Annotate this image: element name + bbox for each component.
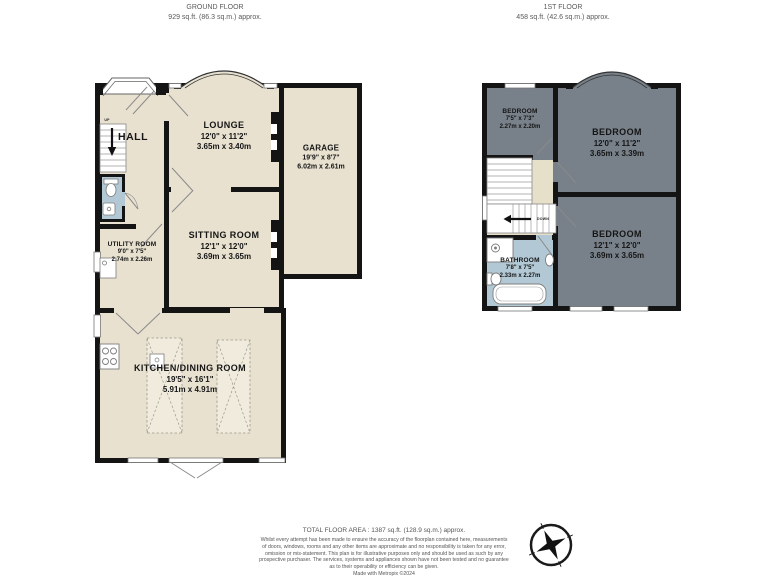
sitting-room-name: SITTING ROOM	[189, 230, 260, 242]
room-landing	[482, 155, 558, 240]
room-wc	[99, 174, 125, 222]
bedroom-small-name: BEDROOM	[500, 108, 541, 116]
kitchen-label: KITCHEN/DINING ROOM 19'5" x 16'1" 5.91m …	[134, 363, 246, 395]
garage-label: GARAGE 19'9" x 8'7" 6.02m x 2.61m	[297, 144, 344, 173]
utility-room-imperial: 9'0" x 7'5"	[108, 249, 157, 257]
bedroom-front-metric: 3.65m x 3.39m	[590, 149, 644, 159]
bathroom-name: BATHROOM	[500, 257, 541, 265]
first-floor-header: 1ST FLOOR 458 sq.ft. (42.6 sq.m.) approx…	[516, 3, 609, 23]
garage-metric: 6.02m x 2.61m	[297, 163, 344, 172]
bedroom-back-name: BEDROOM	[590, 229, 644, 241]
bedroom-back-metric: 3.69m x 3.65m	[590, 251, 644, 261]
sitting-room-label: SITTING ROOM 12'1" x 12'0" 3.69m x 3.65m	[189, 230, 260, 262]
lounge-imperial: 12'0" x 11'2"	[197, 131, 251, 141]
bedroom-front-imperial: 12'0" x 11'2"	[590, 138, 644, 148]
up-label: UP	[104, 118, 109, 122]
bedroom-front-label: BEDROOM 12'0" x 11'2" 3.65m x 3.39m	[590, 127, 644, 159]
room-garage	[279, 83, 362, 279]
room-utility	[95, 224, 169, 313]
lounge-metric: 3.65m x 3.40m	[197, 142, 251, 152]
bathroom-imperial: 7'8" x 7'5"	[500, 265, 541, 273]
ground-floor-area: 929 sq.ft. (86.3 sq.m.) approx.	[168, 13, 261, 23]
kitchen-imperial: 19'5" x 16'1"	[134, 374, 246, 384]
floorplan-page: GROUND FLOOR 929 sq.ft. (86.3 sq.m.) app…	[0, 0, 768, 576]
utility-room-metric: 2.74m x 2.26m	[108, 257, 157, 265]
first-floor-area: 458 sq.ft. (42.6 sq.m.) approx.	[516, 13, 609, 23]
down-label: DOWN	[537, 217, 549, 221]
ground-floor-title: GROUND FLOOR	[168, 3, 261, 13]
kitchen-metric: 5.91m x 4.91m	[134, 385, 246, 395]
ground-floor-header: GROUND FLOOR 929 sq.ft. (86.3 sq.m.) app…	[168, 3, 261, 23]
sitting-room-metric: 3.69m x 3.65m	[189, 252, 260, 262]
disclaimer-text: Whilst every attempt has been made to en…	[204, 537, 564, 576]
first-floor-title: 1ST FLOOR	[516, 3, 609, 13]
kitchen-name: KITCHEN/DINING ROOM	[134, 363, 246, 375]
utility-room-label: UTILITY ROOM 9'0" x 7'5" 2.74m x 2.26m	[108, 241, 157, 265]
utility-room-name: UTILITY ROOM	[108, 241, 157, 249]
sitting-room-imperial: 12'1" x 12'0"	[189, 241, 260, 251]
lounge-label: LOUNGE 12'0" x 11'2" 3.65m x 3.40m	[197, 120, 251, 152]
lounge-name: LOUNGE	[197, 120, 251, 132]
bedroom-back-label: BEDROOM 12'1" x 12'0" 3.69m x 3.65m	[590, 229, 644, 261]
bedroom-small-metric: 2.27m x 2.20m	[500, 124, 541, 132]
garage-imperial: 19'9" x 8'7"	[297, 154, 344, 163]
hall-label: HALL	[118, 131, 148, 143]
bedroom-small-label: BEDROOM 7'5" x 7'3" 2.27m x 2.20m	[500, 108, 541, 132]
bedroom-front-name: BEDROOM	[590, 127, 644, 139]
garage-name: GARAGE	[297, 144, 344, 154]
bedroom-small-imperial: 7'5" x 7'3"	[500, 116, 541, 124]
bathroom-metric: 2.33m x 2.27m	[500, 273, 541, 281]
bedroom-back-imperial: 12'1" x 12'0"	[590, 240, 644, 250]
total-floor-area: TOTAL FLOOR AREA : 1387 sq.ft. (128.9 sq…	[303, 527, 465, 534]
bathroom-label: BATHROOM 7'8" x 7'5" 2.33m x 2.27m	[500, 257, 541, 281]
